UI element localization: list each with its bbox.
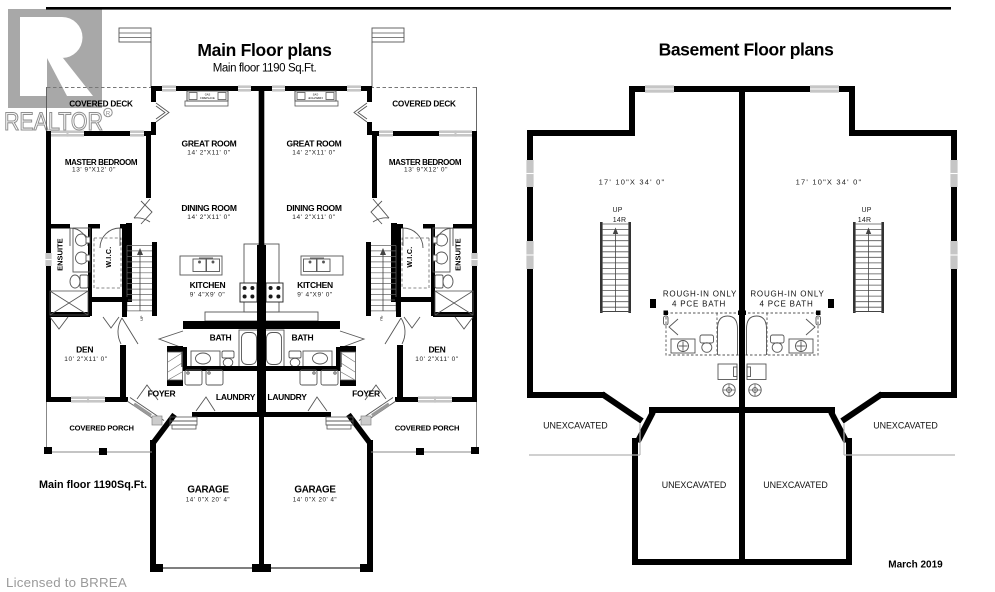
svg-text:GARAGE: GARAGE bbox=[294, 485, 336, 496]
svg-text:GARAGE: GARAGE bbox=[187, 485, 229, 496]
svg-text:Main Floor plans: Main Floor plans bbox=[197, 40, 332, 60]
svg-text:FIREPLACE: FIREPLACE bbox=[200, 96, 215, 100]
svg-text:9' 4"X9' 0": 9' 4"X9' 0" bbox=[297, 292, 333, 299]
svg-text:14' 2"X11' 0": 14' 2"X11' 0" bbox=[187, 150, 231, 157]
svg-text:10' 2"X11' 0": 10' 2"X11' 0" bbox=[64, 356, 108, 363]
svg-text:14' 2"X11' 0": 14' 2"X11' 0" bbox=[292, 214, 336, 221]
svg-text:14R: 14R bbox=[613, 217, 626, 224]
svg-text:COVERED DECK: COVERED DECK bbox=[69, 99, 133, 108]
svg-text:KITCHEN: KITCHEN bbox=[297, 280, 333, 290]
svg-text:ENSUITE: ENSUITE bbox=[454, 238, 463, 271]
svg-text:14' 2"X11' 0": 14' 2"X11' 0" bbox=[292, 150, 336, 157]
svg-text:KITCHEN: KITCHEN bbox=[190, 280, 226, 290]
svg-text:LAUNDRY: LAUNDRY bbox=[216, 392, 256, 402]
svg-text:W.I.C.: W.I.C. bbox=[105, 246, 113, 267]
svg-text:DINING ROOM: DINING ROOM bbox=[286, 203, 341, 213]
svg-text:UP: UP bbox=[140, 315, 144, 321]
svg-text:13' 9"X12' 0": 13' 9"X12' 0" bbox=[72, 167, 116, 174]
svg-text:COVERED PORCH: COVERED PORCH bbox=[395, 424, 460, 433]
svg-text:UNEXCAVATED: UNEXCAVATED bbox=[543, 421, 608, 431]
svg-text:March 2019: March 2019 bbox=[888, 560, 943, 571]
svg-text:GREAT ROOM: GREAT ROOM bbox=[182, 139, 237, 149]
svg-text:14' 2"X11' 0": 14' 2"X11' 0" bbox=[187, 214, 231, 221]
svg-text:14' 0"X 20' 4": 14' 0"X 20' 4" bbox=[293, 497, 337, 504]
svg-text:FOYER: FOYER bbox=[148, 389, 176, 399]
svg-text:LAUNDRY: LAUNDRY bbox=[267, 392, 307, 402]
svg-text:DINING ROOM: DINING ROOM bbox=[181, 203, 236, 213]
svg-text:FOYER: FOYER bbox=[352, 389, 380, 399]
svg-text:BATH: BATH bbox=[292, 333, 314, 343]
svg-text:17' 10"X 34' 0": 17' 10"X 34' 0" bbox=[796, 178, 863, 187]
svg-text:Licensed to BRREA: Licensed to BRREA bbox=[6, 575, 127, 590]
svg-text:UNEXCAVATED: UNEXCAVATED bbox=[873, 421, 938, 431]
svg-text:10' 2"X11' 0": 10' 2"X11' 0" bbox=[415, 356, 459, 363]
svg-text:GREAT ROOM: GREAT ROOM bbox=[287, 139, 342, 149]
svg-text:DEN: DEN bbox=[428, 345, 445, 355]
svg-text:UNEXCAVATED: UNEXCAVATED bbox=[662, 480, 727, 490]
svg-text:Main floor 1190Sq.Ft.: Main floor 1190Sq.Ft. bbox=[39, 479, 147, 491]
svg-text:4 PCE BATH: 4 PCE BATH bbox=[759, 300, 813, 309]
svg-text:13' 9"X12' 0": 13' 9"X12' 0" bbox=[404, 167, 448, 174]
svg-text:14R: 14R bbox=[858, 217, 871, 224]
svg-text:17' 10"X 34' 0": 17' 10"X 34' 0" bbox=[599, 178, 666, 187]
svg-text:ROUGH-IN ONLY: ROUGH-IN ONLY bbox=[750, 290, 824, 299]
svg-text:Basement Floor plans: Basement Floor plans bbox=[659, 39, 834, 59]
svg-text:ROUGH-IN ONLY: ROUGH-IN ONLY bbox=[663, 290, 737, 299]
svg-text:DEN: DEN bbox=[76, 345, 93, 355]
svg-text:Main floor 1190 Sq.Ft.: Main floor 1190 Sq.Ft. bbox=[213, 63, 317, 75]
svg-text:UP: UP bbox=[861, 207, 871, 214]
svg-text:W.I.C.: W.I.C. bbox=[406, 246, 414, 267]
svg-text:R: R bbox=[106, 111, 111, 118]
svg-text:9' 4"X9' 0": 9' 4"X9' 0" bbox=[190, 292, 226, 299]
svg-text:BATH: BATH bbox=[210, 333, 232, 343]
svg-text:ENSUITE: ENSUITE bbox=[56, 238, 65, 271]
svg-text:COVERED PORCH: COVERED PORCH bbox=[69, 424, 134, 433]
svg-text:COVERED DECK: COVERED DECK bbox=[392, 99, 456, 108]
svg-text:UP: UP bbox=[612, 207, 622, 214]
svg-text:14' 0"X 20' 4": 14' 0"X 20' 4" bbox=[186, 497, 230, 504]
svg-text:UNEXCAVATED: UNEXCAVATED bbox=[763, 480, 828, 490]
svg-text:4 PCE BATH: 4 PCE BATH bbox=[672, 300, 726, 309]
